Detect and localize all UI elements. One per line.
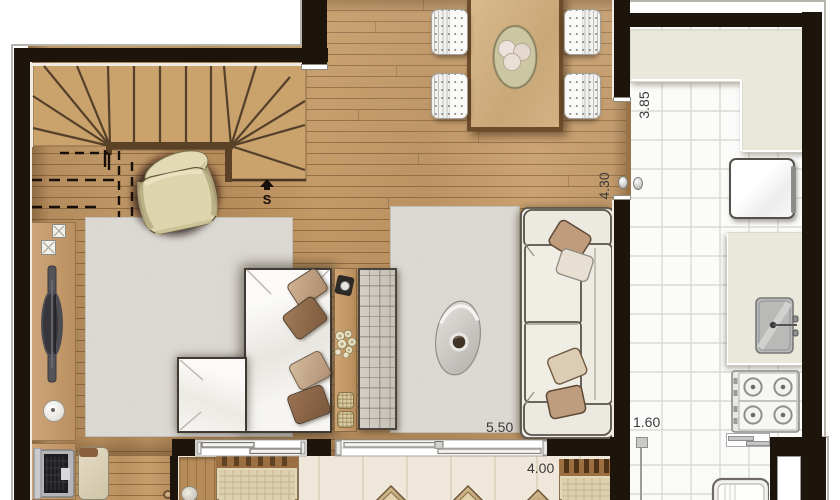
svg-text:S: S — [263, 192, 272, 207]
